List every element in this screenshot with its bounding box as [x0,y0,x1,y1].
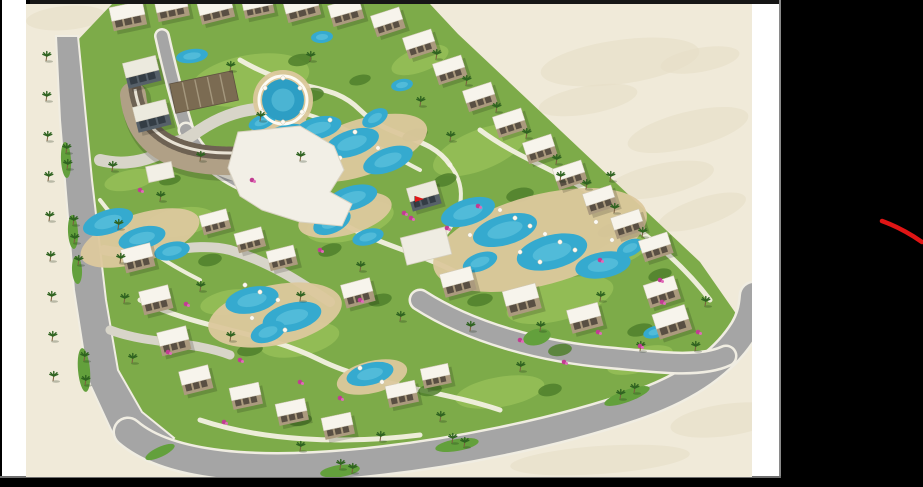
annotation-overlay [0,0,923,487]
video-frame [0,0,923,487]
red-annotation-stroke [882,221,922,242]
